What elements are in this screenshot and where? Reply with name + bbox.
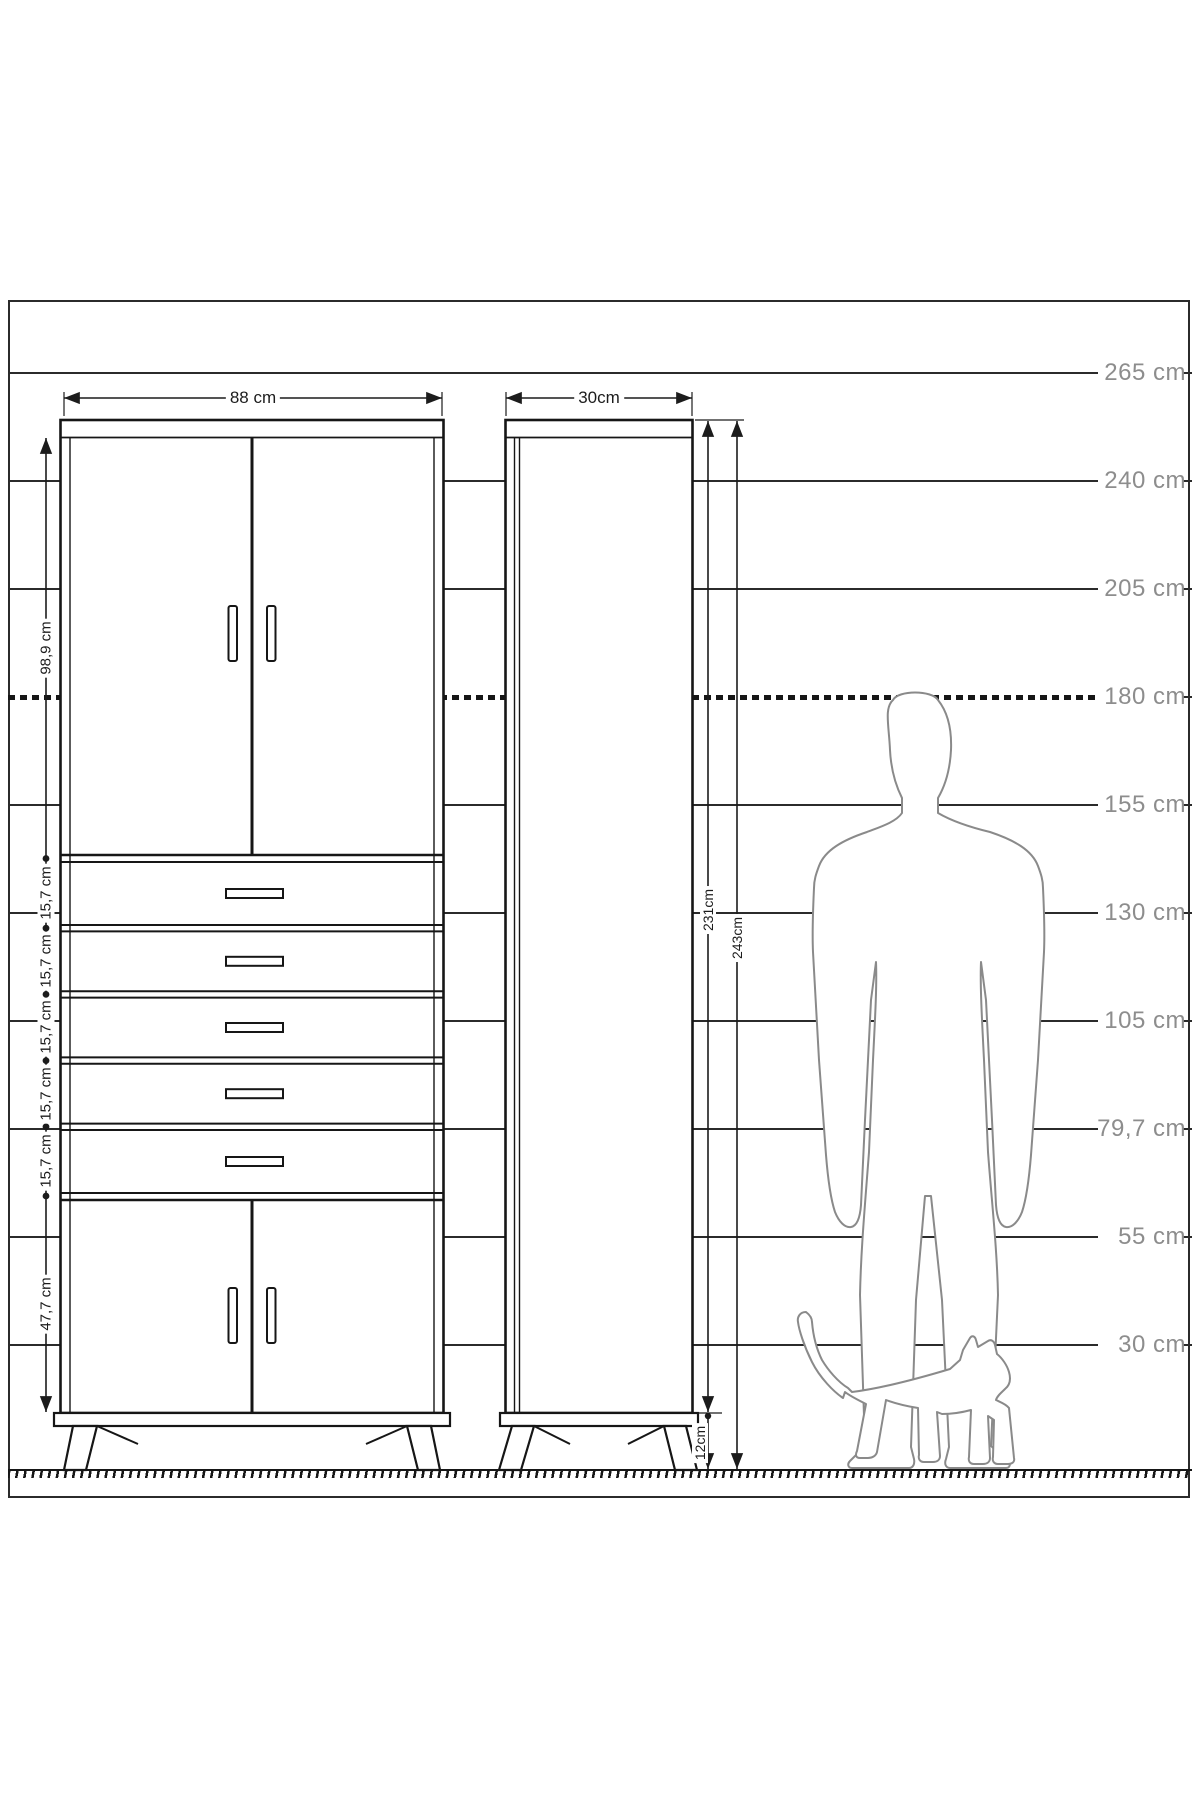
drawer-handle-5 [226,1157,283,1166]
dim-drawer-label-2: 15,7 cm [38,931,55,990]
side-base-strip [500,1413,698,1426]
front-view-cabinet [54,420,450,1470]
front-base-strip [54,1413,450,1426]
front-leg-left [64,1426,97,1470]
technical-drawing-canvas: 265 cm 240 cm 205 cm 180 cm 155 cm 130 c… [0,0,1200,1800]
dim-front-width-label: 88 cm [226,388,280,408]
top-door-handle-right [267,606,276,661]
dim-drawer-label-3: 15,7 cm [38,997,55,1056]
top-door-handle-left [229,606,238,661]
dim-top-doors-label: 98,9 cm [38,618,55,677]
dim-side-width-label: 30cm [574,388,624,408]
dim-drawer-label-4: 15,7 cm [38,1064,55,1123]
drawer-handle-1 [226,889,283,898]
drawer-handle-3 [226,1023,283,1032]
man-silhouette [813,693,1045,1469]
dim-body-height-label: 231cm [700,886,716,934]
bottom-door-handle-left [229,1288,238,1343]
dim-drawer-label-1: 15,7 cm [38,863,55,922]
bottom-door-handle-right [267,1288,276,1343]
side-leg-left [499,1426,534,1470]
dim-leg-height-label: 12cm [692,1423,708,1463]
drawer-handle-4 [226,1089,283,1098]
front-leg-right [407,1426,440,1470]
dim-drawer-label-5: 15,7 cm [38,1131,55,1190]
drawer-handle-2 [226,957,283,966]
dim-total-height-label: 243cm [729,914,745,962]
dim-bottom-doors-label: 47,7 cm [38,1274,55,1333]
side-view-cabinet [499,420,698,1470]
drawing-svg [0,0,1200,1800]
